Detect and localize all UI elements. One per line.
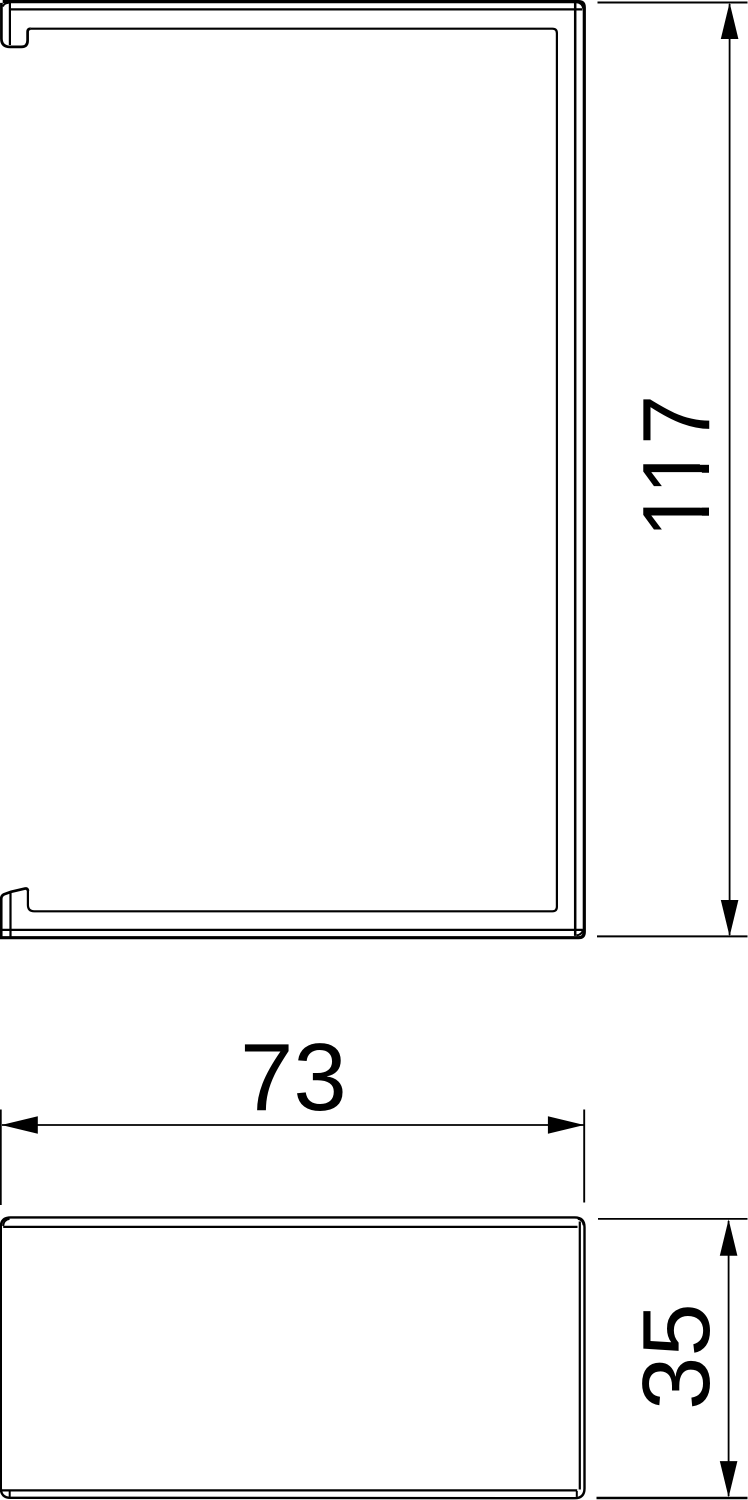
svg-text:35: 35 bbox=[623, 1303, 730, 1410]
svg-text:73: 73 bbox=[240, 1024, 347, 1131]
svg-text:117: 117 bbox=[622, 395, 729, 538]
